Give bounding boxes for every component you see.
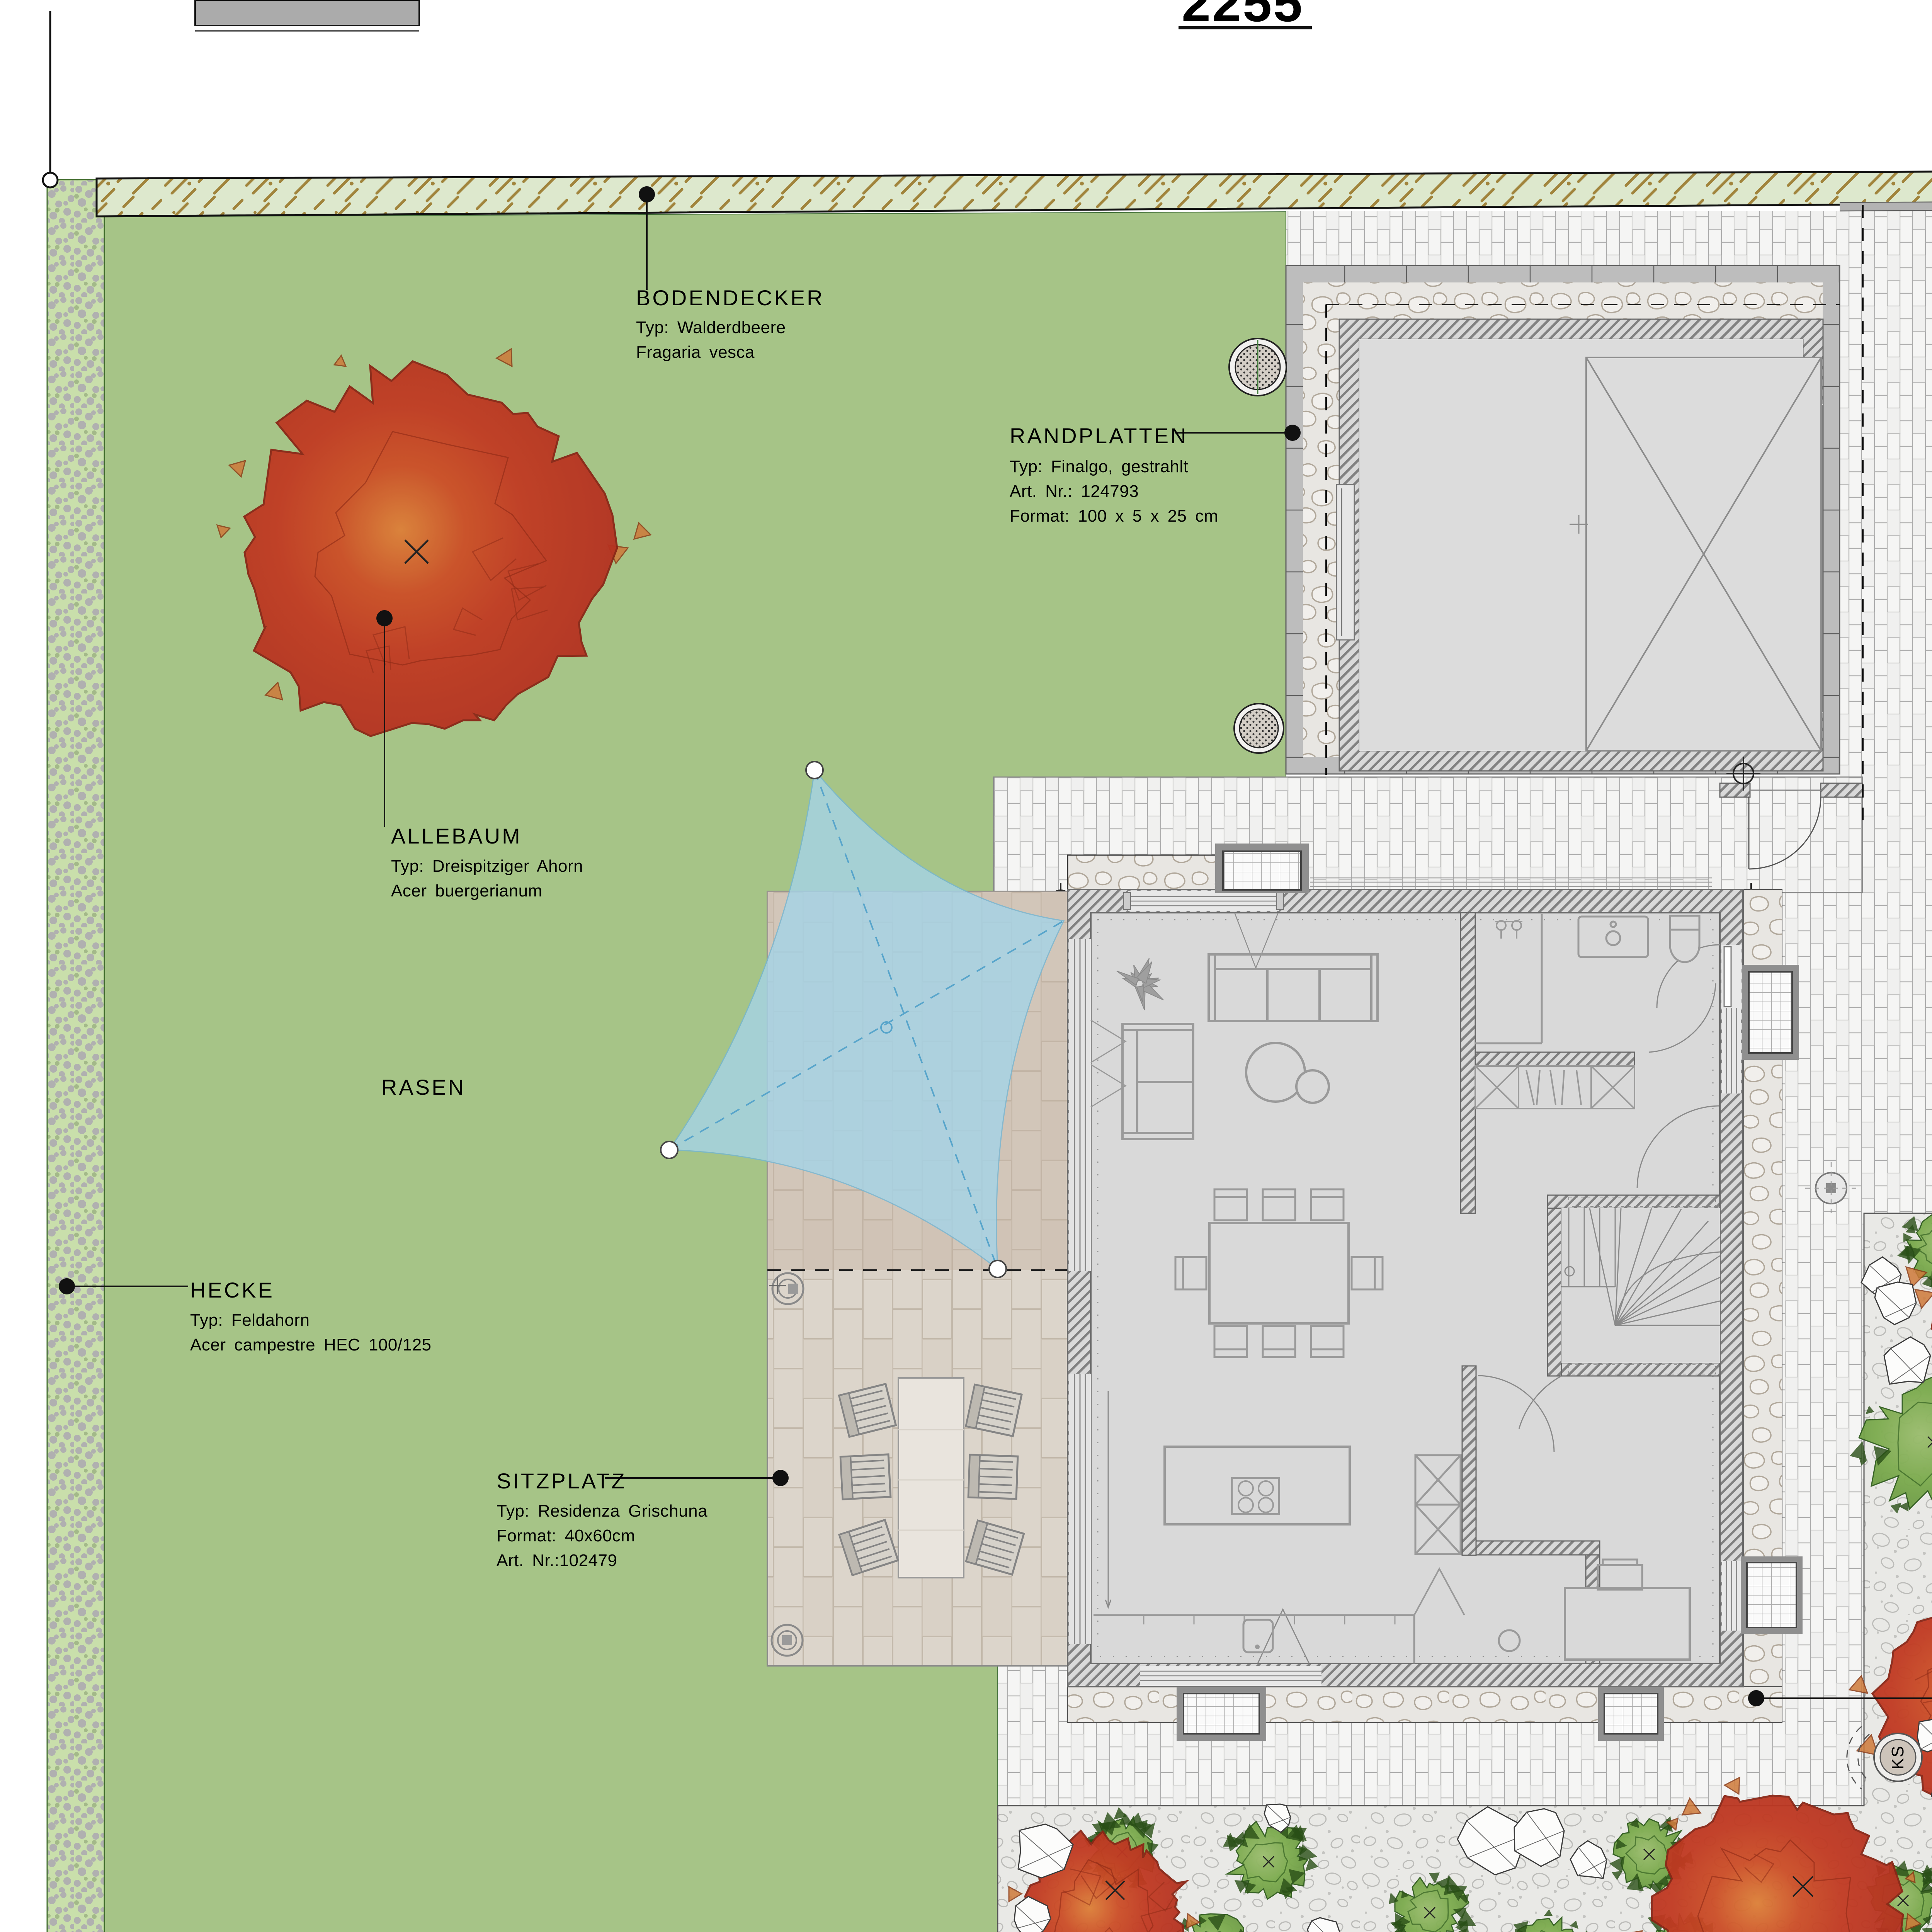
svg-text:ALLEBAUM: ALLEBAUM [391, 824, 522, 848]
svg-text:Typ: Feldahorn: Typ: Feldahorn [190, 1311, 310, 1330]
svg-text:Art. Nr.: 124793: Art. Nr.: 124793 [1010, 482, 1139, 501]
svg-text:BODENDECKER: BODENDECKER [636, 286, 825, 310]
svg-text:RANDPLATTEN: RANDPLATTEN [1010, 423, 1188, 448]
svg-text:KS: KS [1888, 1745, 1907, 1770]
svg-text:Typ: Residenza Grischuna: Typ: Residenza Grischuna [497, 1502, 707, 1520]
svg-text:HECKE: HECKE [190, 1278, 274, 1302]
svg-text:Acer buergerianum: Acer buergerianum [391, 881, 543, 900]
svg-text:SITZPLATZ: SITZPLATZ [497, 1469, 626, 1493]
svg-text:Typ: Walderdbeere: Typ: Walderdbeere [636, 318, 786, 337]
svg-text:Acer campestre HEC 100/125: Acer campestre HEC 100/125 [190, 1335, 432, 1354]
svg-text:Art. Nr.:102479: Art. Nr.:102479 [497, 1551, 617, 1570]
svg-text:RASEN: RASEN [381, 1075, 466, 1099]
svg-text:Typ: Dreispitziger Ahorn: Typ: Dreispitziger Ahorn [391, 857, 583, 876]
svg-text:Format: 100 x 5 x 25 cm: Format: 100 x 5 x 25 cm [1010, 507, 1218, 526]
svg-text:Fragaria vesca: Fragaria vesca [636, 343, 755, 362]
svg-text:Format: 40x60cm: Format: 40x60cm [497, 1526, 635, 1545]
svg-text:Typ: Finalgo, gestrahlt: Typ: Finalgo, gestrahlt [1010, 457, 1188, 476]
